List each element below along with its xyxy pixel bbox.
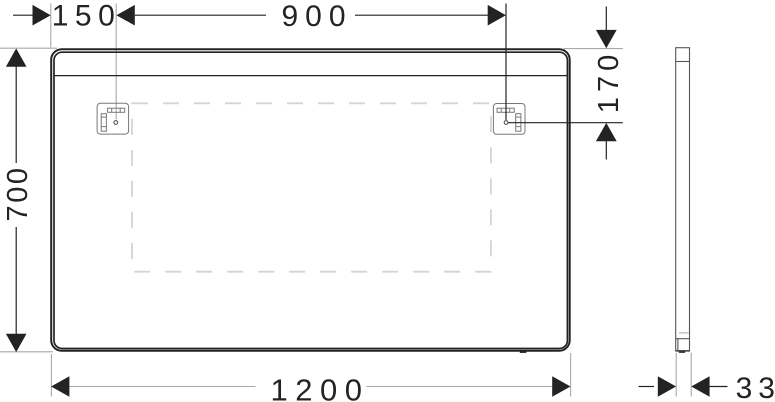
svg-text:33: 33 xyxy=(736,372,775,402)
svg-text:700: 700 xyxy=(2,166,34,222)
svg-text:900: 900 xyxy=(281,0,352,33)
svg-text:1200: 1200 xyxy=(271,373,370,402)
svg-text:170: 170 xyxy=(593,50,625,113)
svg-text:150: 150 xyxy=(52,0,122,32)
